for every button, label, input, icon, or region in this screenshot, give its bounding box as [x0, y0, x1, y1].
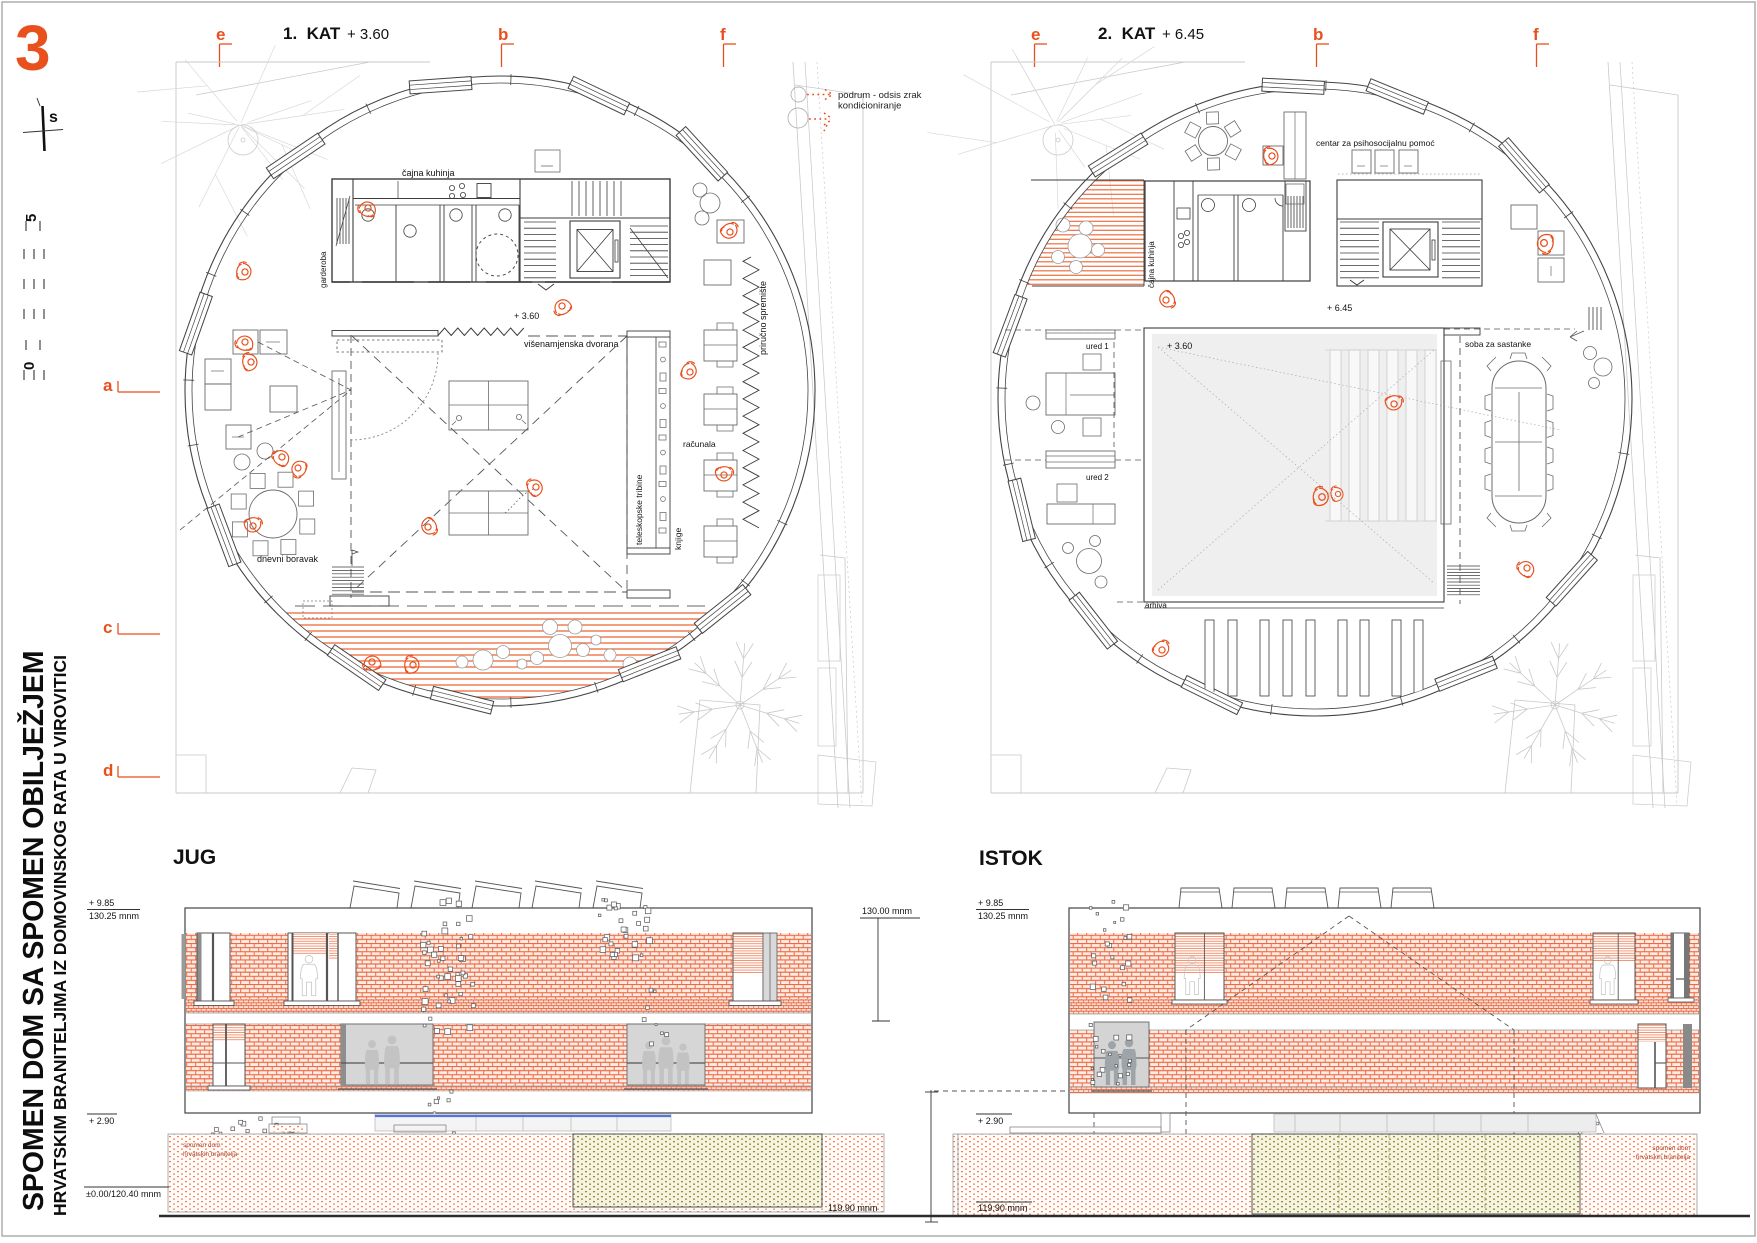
- svg-text:+ 3.60: + 3.60: [1167, 341, 1192, 351]
- svg-text:priručno spremište: priručno spremište: [758, 281, 768, 355]
- svg-text:130.25 mnm: 130.25 mnm: [978, 911, 1028, 921]
- svg-text:0: 0: [21, 362, 38, 370]
- svg-text:d: d: [103, 761, 113, 780]
- svg-text:a: a: [103, 376, 113, 395]
- svg-text:2. KAT: 2. KAT: [1098, 24, 1156, 43]
- svg-text:kondicioniranje: kondicioniranje: [838, 101, 901, 112]
- svg-text:+ 6.45: + 6.45: [1162, 26, 1204, 43]
- svg-text:+ 9.85: + 9.85: [89, 898, 114, 908]
- svg-text:ured 2: ured 2: [1086, 473, 1109, 482]
- svg-text:119.90 mnm: 119.90 mnm: [828, 1203, 877, 1213]
- svg-text:garderoba: garderoba: [319, 251, 328, 288]
- svg-text:JUG: JUG: [173, 846, 216, 869]
- svg-text:centar za psihosocijalnu pomoć: centar za psihosocijalnu pomoć: [1316, 138, 1435, 148]
- svg-text:1. KAT: 1. KAT: [283, 24, 341, 43]
- svg-text:arhiva: arhiva: [1145, 601, 1167, 610]
- svg-text:dnevni boravak: dnevni boravak: [257, 554, 319, 564]
- svg-text:e: e: [1031, 25, 1040, 44]
- svg-text:SPOMEN DOM SA SPOMEN OBILJEŽJE: SPOMEN DOM SA SPOMEN OBILJEŽJEM: [18, 650, 50, 1211]
- svg-text:+ 3.60: + 3.60: [514, 311, 539, 321]
- svg-text:spomen dom: spomen dom: [183, 1142, 221, 1149]
- svg-text:+ 2.90: + 2.90: [89, 1116, 114, 1126]
- svg-text:+ 6.45: + 6.45: [1327, 303, 1352, 313]
- svg-text:c: c: [103, 618, 112, 637]
- svg-text:HRVATSKIM BRANITELJIMA IZ DOMO: HRVATSKIM BRANITELJIMA IZ DOMOVINSKOG RA…: [50, 655, 70, 1216]
- svg-text:f: f: [1533, 25, 1539, 44]
- svg-text:ISTOK: ISTOK: [979, 847, 1043, 870]
- svg-text:s: s: [49, 109, 58, 126]
- svg-text:hrvatskih branitelja: hrvatskih branitelja: [1636, 1154, 1691, 1161]
- svg-text:računala: računala: [683, 439, 716, 449]
- svg-text:5: 5: [23, 214, 40, 222]
- svg-text:hrvatskih branitelja: hrvatskih branitelja: [183, 1151, 238, 1158]
- svg-text:±0.00/120.40 mnm: ±0.00/120.40 mnm: [86, 1189, 161, 1199]
- svg-text:130.00 mnm: 130.00 mnm: [862, 906, 912, 916]
- svg-text:čajna kuhinja: čajna kuhinja: [1147, 241, 1156, 288]
- svg-text:+ 2.90: + 2.90: [978, 1116, 1003, 1126]
- svg-text:3: 3: [15, 12, 51, 84]
- svg-text:b: b: [498, 25, 508, 44]
- svg-text:višenamjenska dvorana: višenamjenska dvorana: [524, 339, 619, 349]
- svg-text:b: b: [1313, 25, 1323, 44]
- svg-text:119.90 mnm: 119.90 mnm: [978, 1203, 1027, 1213]
- svg-text:podrum - odsis zrak: podrum - odsis zrak: [838, 90, 922, 101]
- svg-text:ured 1: ured 1: [1086, 342, 1109, 351]
- svg-text:čajna kuhinja: čajna kuhinja: [402, 168, 455, 178]
- svg-text:spomen dom: spomen dom: [1652, 1145, 1690, 1152]
- svg-text:knjige: knjige: [673, 528, 683, 550]
- svg-text:e: e: [216, 25, 225, 44]
- svg-text:130.25 mnm: 130.25 mnm: [89, 911, 139, 921]
- svg-text:+ 3.60: + 3.60: [347, 26, 389, 43]
- svg-text:f: f: [720, 25, 726, 44]
- svg-text:soba za sastanke: soba za sastanke: [1465, 339, 1531, 349]
- svg-text:+ 9.85: + 9.85: [978, 898, 1003, 908]
- svg-text:teleskopske tribine: teleskopske tribine: [634, 474, 644, 545]
